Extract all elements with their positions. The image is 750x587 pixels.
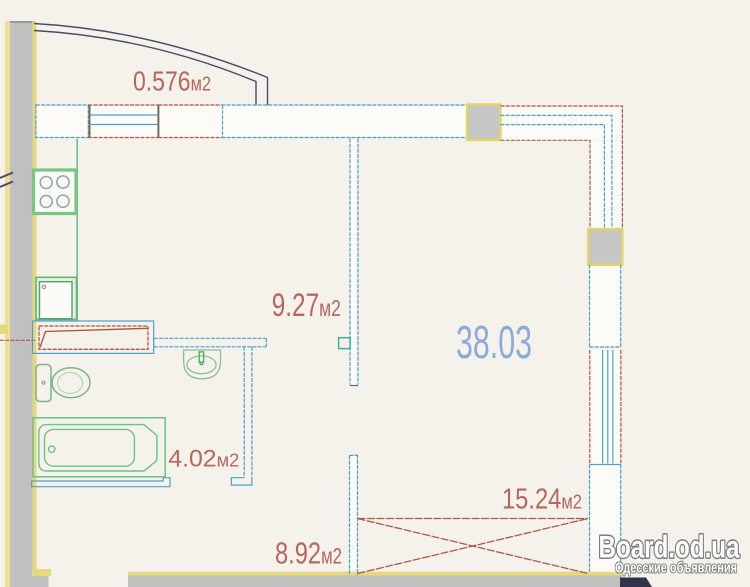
svg-text:4.02м2: 4.02м2 (168, 446, 239, 473)
svg-text:38.03: 38.03 (456, 316, 532, 368)
svg-text:Одесские объявления: Одесские объявления (615, 560, 737, 577)
